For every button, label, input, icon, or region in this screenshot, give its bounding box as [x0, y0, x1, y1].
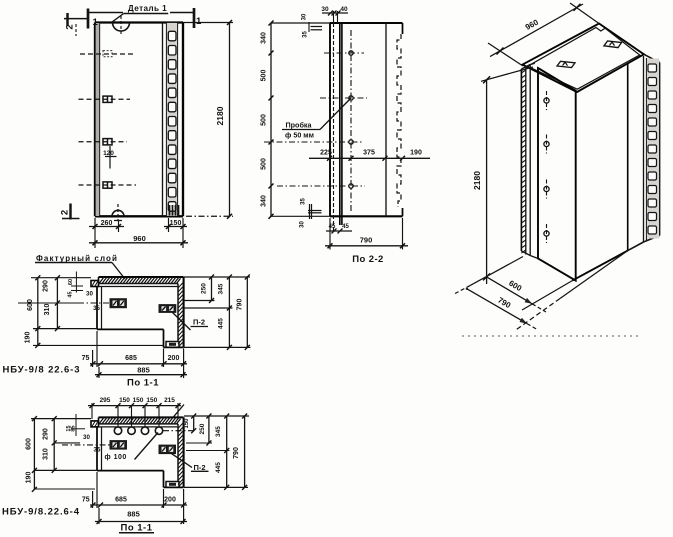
svg-text:35: 35 — [303, 31, 309, 38]
svg-text:ф 100: ф 100 — [105, 454, 127, 461]
svg-text:30: 30 — [321, 6, 329, 13]
svg-text:35: 35 — [301, 198, 307, 205]
svg-text:600: 600 — [26, 438, 33, 450]
svg-text:960: 960 — [133, 234, 146, 243]
svg-text:290: 290 — [43, 428, 50, 440]
svg-text:310: 310 — [43, 448, 50, 460]
svg-text:35: 35 — [93, 306, 100, 312]
svg-text:30: 30 — [302, 13, 308, 20]
svg-text:295: 295 — [100, 397, 111, 404]
svg-text:85: 85 — [71, 425, 77, 431]
svg-text:35: 35 — [94, 447, 101, 454]
svg-text:НБУ-9/8.22.6-4: НБУ-9/8.22.6-4 — [2, 507, 80, 518]
svg-text:60: 60 — [68, 279, 74, 285]
svg-text:30: 30 — [86, 291, 93, 298]
svg-text:НБУ-9/8 22.6-3: НБУ-9/8 22.6-3 — [3, 365, 81, 376]
svg-text:П-2: П-2 — [193, 318, 205, 327]
svg-text:75: 75 — [82, 355, 90, 362]
svg-text:1: 1 — [93, 17, 99, 28]
svg-text:150: 150 — [133, 397, 144, 404]
svg-text:45: 45 — [68, 291, 74, 297]
svg-text:885: 885 — [137, 366, 150, 375]
svg-text:Фактурный слой: Фактурный слой — [36, 254, 118, 263]
svg-text:По 2-2: По 2-2 — [352, 254, 383, 265]
svg-text:190: 190 — [25, 332, 32, 344]
svg-text:310: 310 — [44, 304, 51, 316]
svg-text:345: 345 — [215, 426, 222, 437]
svg-text:1: 1 — [196, 16, 202, 27]
svg-text:445: 445 — [215, 462, 222, 473]
svg-text:2: 2 — [65, 24, 76, 29]
svg-text:40: 40 — [340, 6, 348, 13]
svg-text:600: 600 — [27, 299, 34, 311]
svg-text:250: 250 — [199, 423, 206, 434]
svg-text:30: 30 — [300, 221, 306, 228]
svg-text:500: 500 — [261, 158, 268, 170]
svg-text:Пробка: Пробка — [286, 121, 313, 130]
svg-text:200: 200 — [168, 355, 180, 362]
svg-text:75: 75 — [82, 496, 90, 503]
svg-text:По 1-1: По 1-1 — [127, 378, 159, 389]
svg-text:445: 445 — [218, 318, 225, 329]
svg-text:790: 790 — [360, 236, 373, 245]
svg-text:30: 30 — [83, 434, 90, 441]
svg-text:685: 685 — [125, 355, 137, 362]
svg-text:685: 685 — [115, 496, 127, 503]
svg-text:375: 375 — [363, 150, 375, 157]
svg-text:Деталь 1: Деталь 1 — [128, 4, 167, 13]
svg-text:2180: 2180 — [472, 171, 482, 190]
svg-text:250: 250 — [201, 283, 208, 294]
svg-text:По 1-1: По 1-1 — [120, 523, 152, 534]
svg-text:500: 500 — [261, 70, 268, 82]
svg-text:45: 45 — [342, 224, 349, 230]
svg-text:290: 290 — [43, 280, 50, 292]
svg-text:340: 340 — [261, 195, 268, 207]
svg-text:2180: 2180 — [215, 106, 225, 125]
svg-text:200: 200 — [164, 496, 176, 503]
svg-text:340: 340 — [261, 32, 268, 44]
svg-text:790: 790 — [237, 299, 244, 311]
svg-text:150: 150 — [146, 397, 157, 404]
svg-text:2: 2 — [60, 210, 71, 215]
svg-text:885: 885 — [127, 510, 140, 519]
svg-text:150: 150 — [170, 220, 182, 227]
svg-text:790: 790 — [233, 447, 240, 459]
svg-text:150: 150 — [119, 397, 130, 404]
svg-text:215: 215 — [164, 397, 175, 404]
svg-text:225: 225 — [320, 150, 332, 157]
svg-text:190: 190 — [26, 472, 33, 484]
svg-text:ф 50 мм: ф 50 мм — [285, 131, 314, 140]
svg-text:190: 190 — [410, 150, 422, 157]
svg-text:345: 345 — [218, 283, 225, 294]
svg-text:500: 500 — [261, 114, 268, 126]
svg-text:150: 150 — [184, 418, 190, 429]
svg-text:260: 260 — [101, 220, 113, 227]
